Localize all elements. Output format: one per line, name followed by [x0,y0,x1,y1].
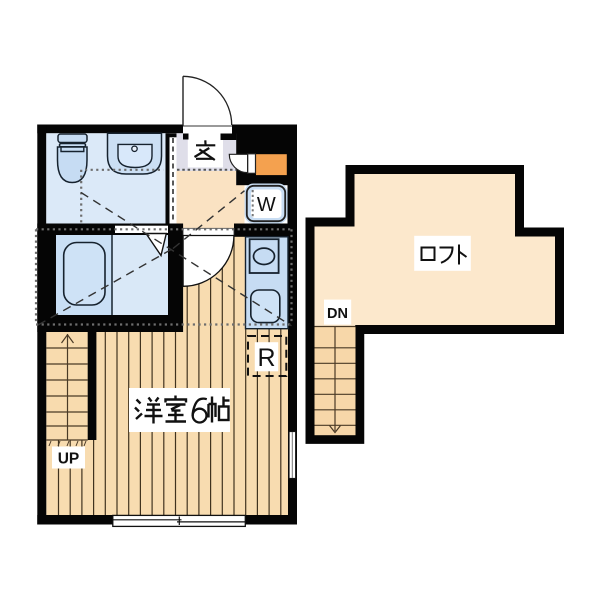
svg-text:W: W [257,194,276,216]
svg-text:DN: DN [327,306,348,322]
svg-text:R: R [257,344,275,372]
svg-text:UP: UP [58,451,80,468]
